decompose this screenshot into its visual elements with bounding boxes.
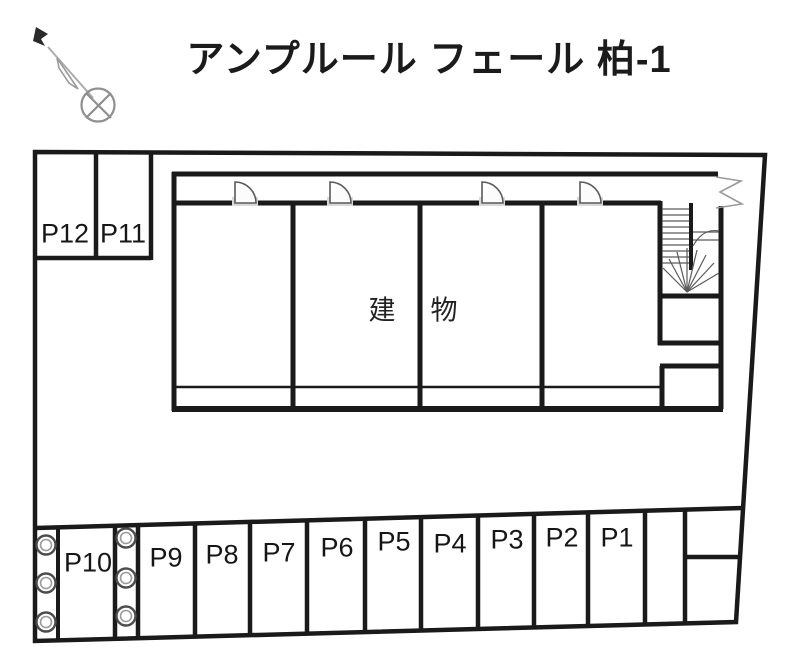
site-plan-drawing bbox=[0, 0, 800, 672]
shrub-icon bbox=[37, 536, 56, 555]
parking-stall-label-p11: P11 bbox=[100, 221, 146, 248]
building-label: 建 物 bbox=[369, 289, 462, 328]
parking-stall-label-p8: P8 bbox=[205, 542, 238, 569]
planting-strips bbox=[37, 529, 136, 632]
shrub-icon bbox=[37, 574, 56, 593]
staircase-icon bbox=[658, 201, 721, 409]
shrub-icon bbox=[117, 529, 136, 548]
page-title: アンプルール フェール 柏-1 bbox=[58, 28, 800, 83]
parking-stall-label-p5: P5 bbox=[377, 529, 410, 556]
parking-stall-label-p2: P2 bbox=[545, 525, 578, 552]
door-swing-icon bbox=[479, 182, 505, 206]
parking-stall-label-p4: P4 bbox=[433, 531, 466, 558]
parking-stall-label-p3: P3 bbox=[490, 527, 523, 554]
parking-stall-label-p10: P10 bbox=[64, 550, 112, 577]
boundary-break-icon bbox=[716, 177, 742, 208]
parking-stall-label-p9: P9 bbox=[149, 545, 182, 572]
parking-stall-label-p12: P12 bbox=[41, 221, 89, 248]
shrub-icon bbox=[117, 569, 136, 588]
shrub-icon bbox=[37, 613, 56, 632]
door-swing-icon bbox=[327, 182, 353, 206]
parking-stall-label-p6: P6 bbox=[320, 535, 353, 562]
parking-stall-label-p1: P1 bbox=[600, 525, 633, 552]
door-swing-icon bbox=[577, 182, 603, 206]
site-plan-page: アンプルール フェール 柏-1 建 物 P1 P2 P3 P4 P5 P6 P7… bbox=[0, 0, 800, 672]
door-swing-icon bbox=[232, 182, 258, 206]
shrub-icon bbox=[117, 607, 136, 626]
parking-stall-label-p7: P7 bbox=[262, 540, 295, 567]
